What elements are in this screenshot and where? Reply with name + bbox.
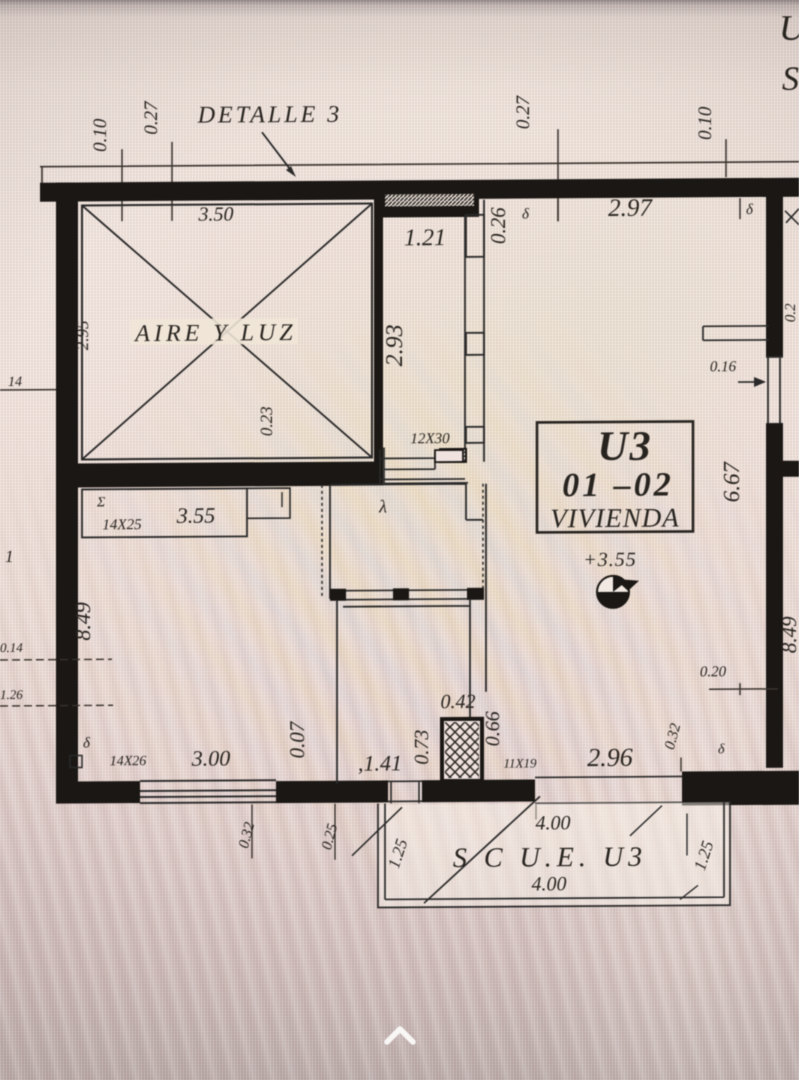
svg-text:1.26: 1.26 [0,687,23,702]
svg-text:Σ: Σ [96,495,106,510]
svg-text:0.07: 0.07 [285,720,309,758]
svg-text:14X26: 14X26 [110,754,147,769]
svg-text:8.49: 8.49 [777,616,799,653]
svg-text:0.27: 0.27 [141,100,162,135]
svg-text:14X25: 14X25 [102,517,142,533]
svg-text:0.32: 0.32 [662,721,684,751]
svg-text:12X30: 12X30 [410,431,450,447]
svg-text:0.73: 0.73 [411,730,433,765]
svg-text:0.10: 0.10 [695,106,716,140]
svg-text:U: U [779,8,799,48]
svg-text:1: 1 [5,547,13,566]
svg-text:0.10: 0.10 [90,118,111,152]
svg-text:4.00: 4.00 [532,873,567,895]
svg-text:U3: U3 [597,424,652,470]
svg-text:S C U.E. U3: S C U.E. U3 [453,842,647,874]
svg-text:4.00: 4.00 [536,812,571,834]
svg-text:0.23: 0.23 [257,406,276,436]
svg-text:δ: δ [83,735,91,751]
svg-text:0.14: 0.14 [0,640,23,655]
svg-text:2.97: 2.97 [608,195,653,222]
svg-text:S: S [782,61,799,98]
svg-text:0.27: 0.27 [513,94,534,129]
svg-text:8.49: 8.49 [70,602,95,641]
svg-text:0.2: 0.2 [783,303,799,322]
svg-text:VIVIENDA: VIVIENDA [550,502,679,533]
svg-text:0.32: 0.32 [236,820,258,850]
svg-text:δ: δ [746,202,754,218]
svg-text:0.26: 0.26 [486,207,510,244]
svg-text:0.42: 0.42 [441,691,476,713]
svg-text:0.20: 0.20 [700,664,727,680]
svg-text:+3.55: +3.55 [583,549,636,571]
svg-text:3.50: 3.50 [198,203,234,225]
svg-text:01 –02: 01 –02 [562,467,674,505]
svg-text:11X19: 11X19 [504,755,537,770]
svg-text:0.16: 0.16 [710,359,737,375]
svg-text:δ: δ [718,742,725,757]
svg-text:1.21: 1.21 [404,225,446,251]
svg-text:14: 14 [8,375,22,390]
svg-text:2.96: 2.96 [587,743,632,772]
svg-text:δ: δ [522,206,530,222]
svg-text:0.66: 0.66 [482,711,504,746]
svg-text:AIRE Y LUZ: AIRE Y LUZ [133,320,296,347]
svg-text:3.00: 3.00 [191,745,230,770]
svg-text:2.95: 2.95 [73,321,92,351]
svg-text:3.55: 3.55 [176,503,215,528]
svg-text:DETALLE 3: DETALLE 3 [197,102,343,129]
svg-text:2.93: 2.93 [382,324,408,366]
svg-text:,1.41: ,1.41 [358,750,402,775]
svg-text:0.25: 0.25 [319,822,341,852]
svg-text:6.67: 6.67 [719,460,744,502]
svg-text:λ: λ [378,496,387,516]
